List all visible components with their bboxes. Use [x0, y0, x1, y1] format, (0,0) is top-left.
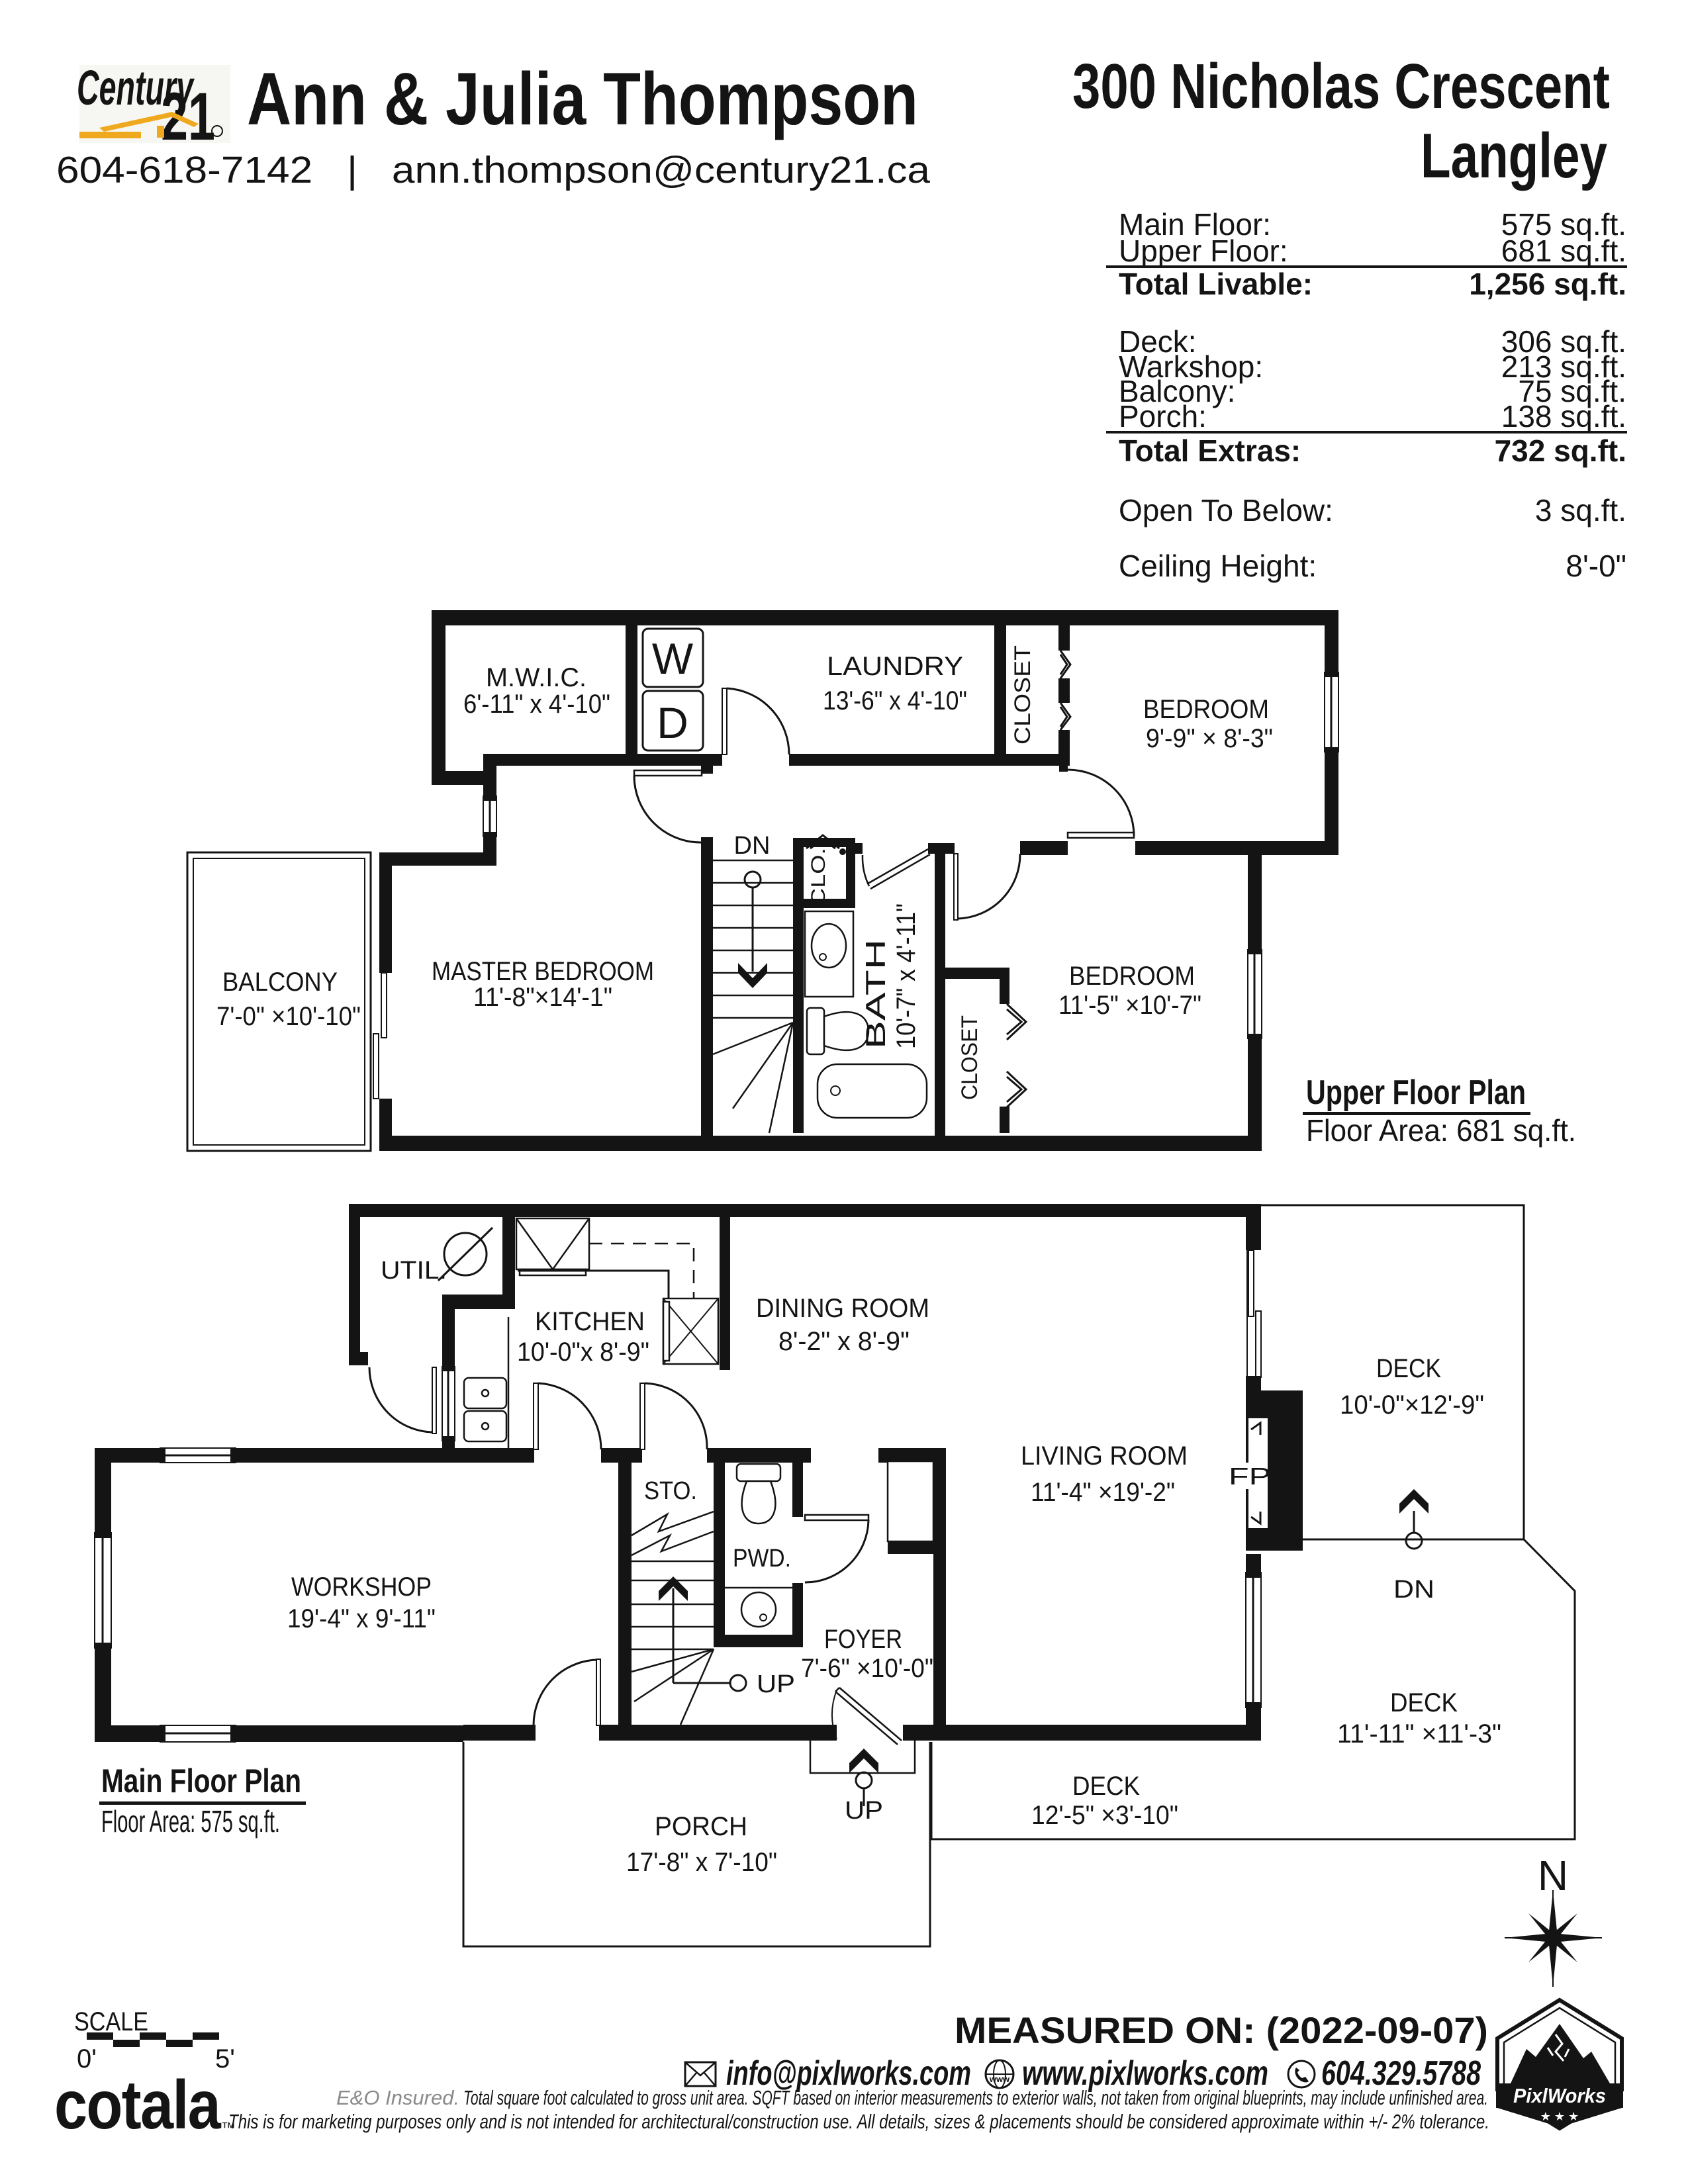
svg-text:CLO.: CLO.	[808, 848, 829, 906]
svg-text:Floor Area: 681 sq.ft.: Floor Area: 681 sq.ft.	[1306, 1113, 1576, 1148]
svg-text:11'-4" ×19'-2": 11'-4" ×19'-2"	[1031, 1478, 1175, 1507]
svg-text:Upper Floor:: Upper Floor:	[1119, 234, 1288, 268]
svg-text:Total square foot calculated t: Total square foot calculated to gross un…	[463, 2086, 1488, 2109]
svg-text:UTIL.: UTIL.	[381, 1257, 447, 1285]
svg-text:KITCHEN: KITCHEN	[535, 1307, 645, 1336]
svg-text:DN: DN	[1393, 1576, 1434, 1604]
svg-text:11'-5" ×10'-7": 11'-5" ×10'-7"	[1058, 991, 1201, 1020]
svg-text:8'-0": 8'-0"	[1566, 549, 1626, 583]
svg-text:★ ★ ★: ★ ★ ★	[1540, 2110, 1579, 2123]
svg-text:DN: DN	[734, 832, 771, 860]
svg-text:LIVING ROOM: LIVING ROOM	[1021, 1441, 1188, 1471]
svg-text:PORCH: PORCH	[655, 1812, 747, 1841]
svg-text:CLOSET: CLOSET	[1010, 645, 1035, 745]
svg-text:WORKSHOP: WORKSHOP	[291, 1572, 432, 1602]
svg-text:Total Livable:: Total Livable:	[1119, 267, 1313, 301]
svg-text:PixlWorks: PixlWorks	[1513, 2084, 1606, 2107]
svg-text:UP: UP	[845, 1797, 883, 1825]
svg-text:Main Floor Plan: Main Floor Plan	[101, 1762, 301, 1799]
svg-text:W: W	[652, 634, 694, 683]
svg-text:MASTER BEDROOM: MASTER BEDROOM	[432, 957, 654, 986]
svg-text:10'-7" x 4'-11": 10'-7" x 4'-11"	[892, 903, 921, 1049]
svg-text:7'-6" ×10'-0": 7'-6" ×10'-0"	[801, 1654, 933, 1683]
svg-text:Total Extras:: Total Extras:	[1119, 433, 1301, 468]
svg-text:D: D	[657, 698, 688, 747]
svg-text:SCALE: SCALE	[74, 2007, 148, 2036]
svg-text:Langley: Langley	[1421, 120, 1607, 191]
svg-text:BATH: BATH	[860, 939, 891, 1049]
svg-text:FOYER: FOYER	[824, 1625, 902, 1654]
svg-text:LAUNDRY: LAUNDRY	[827, 652, 963, 681]
svg-text:19'-4" x 9'-11": 19'-4" x 9'-11"	[287, 1604, 436, 1633]
svg-text:17'-8" x 7'-10": 17'-8" x 7'-10"	[626, 1848, 777, 1877]
svg-text:12'-5" ×3'-10": 12'-5" ×3'-10"	[1031, 1801, 1178, 1830]
svg-text:Open To Below:: Open To Below:	[1119, 493, 1333, 527]
svg-text:DECK: DECK	[1390, 1688, 1458, 1717]
svg-text:11'-11" ×11'-3": 11'-11" ×11'-3"	[1337, 1719, 1501, 1749]
svg-text:This is for marketing purposes: This is for marketing purposes only and …	[228, 2110, 1489, 2133]
svg-text:13'-6" x 4'-10": 13'-6" x 4'-10"	[823, 686, 967, 715]
svg-text:BEDROOM: BEDROOM	[1143, 695, 1269, 724]
svg-text:BALCONY: BALCONY	[222, 968, 338, 997]
svg-text:E&O Insured.: E&O Insured.	[336, 2086, 459, 2109]
svg-text:FP: FP	[1229, 1463, 1271, 1490]
svg-text:UP: UP	[757, 1670, 795, 1698]
svg-text:DECK: DECK	[1376, 1354, 1441, 1383]
svg-text:Ann & Julia Thompson: Ann & Julia Thompson	[247, 58, 918, 140]
svg-text:6'-11" x 4'-10": 6'-11" x 4'-10"	[463, 690, 610, 719]
svg-text:DINING ROOM: DINING ROOM	[756, 1294, 929, 1323]
svg-text:9'-9" × 8'-3": 9'-9" × 8'-3"	[1146, 724, 1273, 753]
svg-text:10'-0"x 8'-9": 10'-0"x 8'-9"	[517, 1338, 649, 1367]
svg-text:138 sq.ft.: 138 sq.ft.	[1501, 399, 1626, 433]
svg-text:CLOSET: CLOSET	[957, 1015, 982, 1100]
svg-text:604-618-7142 | ann.thompso: 604-618-7142 | ann.thompson@century21.ca	[56, 149, 930, 191]
svg-text:DECK: DECK	[1072, 1772, 1140, 1801]
svg-text:681 sq.ft.: 681 sq.ft.	[1501, 234, 1626, 268]
svg-text:8'-2" x 8'-9": 8'-2" x 8'-9"	[778, 1327, 910, 1356]
svg-text:Porch:: Porch:	[1119, 399, 1207, 433]
svg-text:732 sq.ft.: 732 sq.ft.	[1495, 433, 1626, 468]
svg-text:10'-0"×12'-9": 10'-0"×12'-9"	[1340, 1390, 1484, 1420]
svg-text:3 sq.ft.: 3 sq.ft.	[1535, 493, 1626, 527]
svg-text:Upper Floor Plan: Upper Floor Plan	[1306, 1073, 1526, 1112]
svg-text:PWD.: PWD.	[733, 1545, 791, 1572]
svg-text:BEDROOM: BEDROOM	[1069, 962, 1195, 991]
svg-text:1,256 sq.ft.: 1,256 sq.ft.	[1469, 267, 1626, 301]
svg-text:Ceiling Height:: Ceiling Height:	[1119, 549, 1317, 583]
svg-text:M.W.I.C.: M.W.I.C.	[486, 663, 586, 692]
svg-text:300 Nicholas Crescent: 300 Nicholas Crescent	[1072, 51, 1610, 122]
svg-text:www: www	[989, 2074, 1010, 2084]
svg-text:MEASURED ON: (2022-09-07): MEASURED ON: (2022-09-07)	[955, 2009, 1488, 2051]
svg-text:cotala: cotala	[54, 2067, 222, 2144]
svg-text:7'-0" ×10'-10": 7'-0" ×10'-10"	[216, 1002, 361, 1031]
svg-text:Floor Area: 575 sq.ft.: Floor Area: 575 sq.ft.	[101, 1804, 280, 1839]
svg-text:STO.: STO.	[644, 1477, 697, 1505]
svg-text:11'-8"×14'-1": 11'-8"×14'-1"	[473, 983, 612, 1012]
